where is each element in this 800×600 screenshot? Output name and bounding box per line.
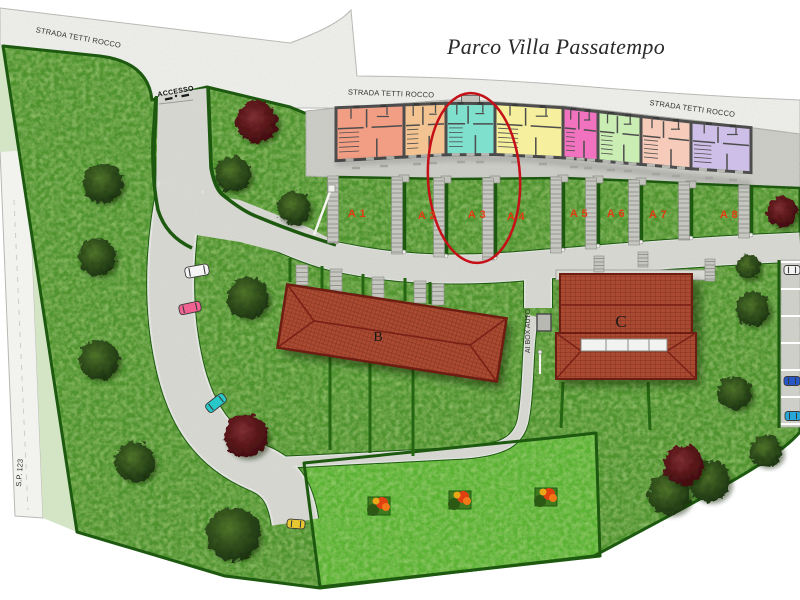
svg-text:A 3: A 3	[468, 209, 486, 221]
svg-text:A 7: A 7	[649, 209, 667, 221]
svg-text:A 4: A 4	[507, 211, 526, 223]
svg-text:AI BOX AUTO: AI BOX AUTO	[525, 308, 532, 353]
svg-text:A 6: A 6	[607, 208, 625, 220]
svg-text:A 2: A 2	[418, 210, 436, 222]
svg-text:C: C	[615, 312, 626, 331]
svg-text:Parco Villa Passatempo: Parco Villa Passatempo	[446, 34, 665, 59]
svg-text:B: B	[373, 330, 382, 345]
svg-text:A 8: A 8	[720, 209, 738, 221]
svg-text:A 5: A 5	[570, 208, 588, 220]
svg-text:A 1: A 1	[348, 208, 366, 220]
